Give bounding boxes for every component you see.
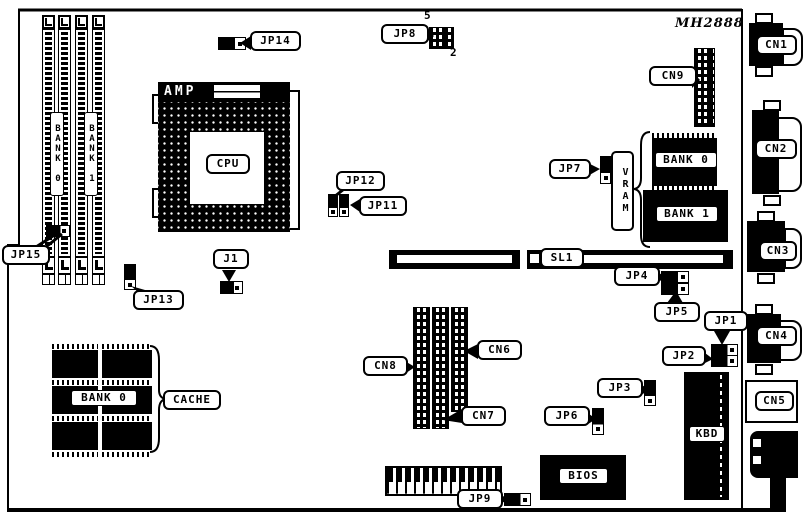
cache-chip: [52, 422, 98, 450]
jp7-jumper: [600, 156, 611, 184]
jp6-callout: JP6: [544, 406, 590, 426]
cn6-header: [451, 307, 468, 412]
jp7-callout: JP7: [549, 159, 591, 179]
chip-pins: [52, 344, 98, 349]
jp6-jumper: [592, 408, 604, 435]
expansion-slot-inner: [397, 255, 512, 263]
cn5-callout: CN5: [755, 391, 794, 411]
bios-label: BIOS: [559, 468, 608, 484]
jp8-pin5-number: 5: [424, 9, 431, 22]
cn8-callout: CN8: [363, 356, 408, 376]
cn2-callout: CN2: [755, 139, 797, 159]
cn8-header: [413, 307, 430, 429]
cache-chip: [102, 422, 152, 450]
jp15-jumper: [46, 225, 70, 237]
cache-callout: CACHE: [163, 390, 221, 410]
cn7-header: [432, 307, 449, 429]
jp11-callout: JP11: [359, 196, 407, 216]
jp9-jumper: [504, 493, 531, 506]
chip-pins: [102, 380, 152, 385]
jp14-callout: JP14: [250, 31, 301, 51]
chip-pins: [102, 416, 152, 421]
jp14-jumper: [218, 37, 246, 50]
jp5-jumper: [661, 283, 689, 295]
cache-chip: [102, 350, 152, 378]
jp3-callout: JP3: [597, 378, 643, 398]
cn6-callout: CN6: [477, 340, 522, 360]
simm-bank1-label: BANK 1: [84, 112, 98, 196]
jp3-jumper: [644, 380, 656, 406]
jp15-callout: JP15: [2, 245, 50, 265]
chip-pins: [52, 452, 98, 457]
motherboard-diagram: BANK 0 BANK 1 JP15 AMP CPU JP14 JP8 5 2 …: [0, 0, 803, 520]
sl1-slot-key: [530, 254, 539, 263]
j1-jumper: [220, 281, 243, 294]
cache-bank0-label: BANK 0: [71, 390, 137, 406]
mounting-tab: [757, 273, 775, 284]
jp11-jumper: [339, 194, 349, 217]
cn3-callout: CN3: [759, 241, 797, 261]
jp4-callout: JP4: [614, 266, 660, 286]
simm-bank0-label: BANK 0: [50, 112, 64, 196]
mounting-tab: [755, 364, 773, 375]
cache-chip: [52, 350, 98, 378]
amp-label: AMP: [164, 84, 196, 99]
kbd-label: KBD: [689, 426, 725, 442]
vram-label: VRAM: [611, 151, 634, 231]
jp12-jumper: [328, 194, 338, 217]
jp2-callout: JP2: [662, 346, 706, 366]
jp1-callout: JP1: [704, 311, 748, 331]
cn1-callout: CN1: [756, 35, 797, 55]
vram-bank1-label: BANK 1: [656, 206, 718, 222]
j1-callout: J1: [213, 249, 249, 269]
cn9-header: [694, 48, 715, 127]
part-number: MH2888: [675, 16, 744, 31]
jp2-jumper: [711, 355, 738, 367]
cn9-callout: CN9: [649, 66, 697, 86]
jp9-callout: JP9: [457, 489, 503, 509]
vram-bank0-label: BANK 0: [655, 152, 717, 168]
chip-pins: [52, 416, 98, 421]
jp13-jumper: [124, 264, 136, 290]
jp12-callout: JP12: [336, 171, 385, 191]
cn4-callout: CN4: [756, 326, 797, 346]
mounting-tab: [763, 195, 781, 206]
socket-marking: [214, 85, 260, 98]
cn7-callout: CN7: [461, 406, 506, 426]
jp13-callout: JP13: [133, 290, 184, 310]
sl1-callout: SL1: [540, 248, 584, 268]
cpu-callout: CPU: [206, 154, 250, 174]
chip-pins: [102, 452, 152, 457]
jp8-callout: JP8: [381, 24, 429, 44]
jp5-callout: JP5: [654, 302, 700, 322]
chip-pins: [52, 380, 98, 385]
jp8-pin2-number: 2: [450, 46, 457, 59]
din-pin: [753, 439, 761, 447]
mounting-tab: [755, 66, 773, 77]
jp4-jumper: [661, 271, 689, 283]
chip-pins: [102, 344, 152, 349]
din-pin: [753, 456, 761, 464]
